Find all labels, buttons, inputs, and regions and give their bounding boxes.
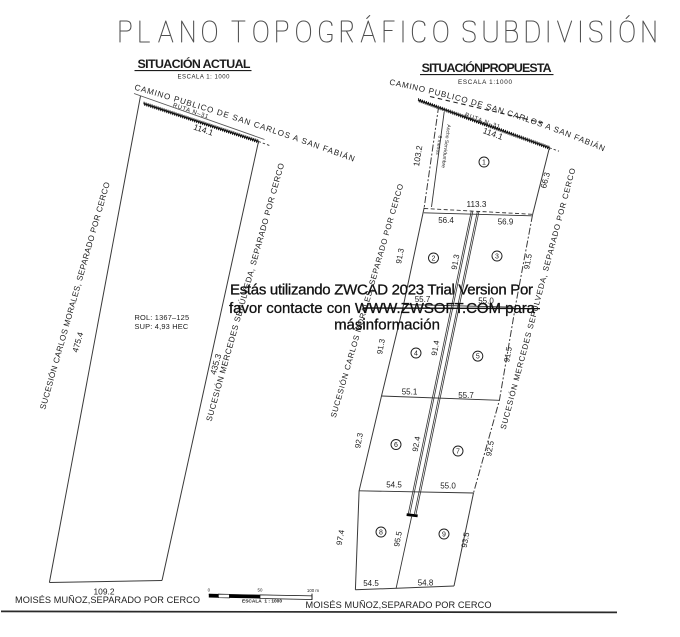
svg-text:ESCALA 1: 1000: ESCALA 1: 1000: [178, 74, 231, 80]
svg-text:Estás utilizando ZWCAD 2023 Tr: Estás utilizando ZWCAD 2023 Trial Versio…: [230, 282, 533, 299]
svg-text:SUP: 4,93 HEC: SUP: 4,93 HEC: [135, 322, 189, 331]
svg-text:1: 1: [482, 160, 486, 167]
svg-text:MOISÉS MUÑOZ,SEPARADO POR CERC: MOISÉS MUÑOZ,SEPARADO POR CERCO: [15, 595, 200, 605]
svg-text:54.8: 54.8: [418, 578, 434, 587]
svg-text:55.7: 55.7: [458, 391, 474, 400]
svg-text:54.5: 54.5: [363, 579, 379, 588]
svg-text:ROL: 1367–125: ROL: 1367–125: [135, 313, 190, 322]
svg-text:55.0: 55.0: [440, 481, 456, 490]
svg-text:55.1: 55.1: [402, 387, 418, 396]
svg-text:56.9: 56.9: [498, 217, 514, 226]
svg-text:9: 9: [442, 532, 446, 539]
svg-text:100 m: 100 m: [307, 588, 320, 593]
svg-text:54.5: 54.5: [386, 480, 402, 489]
svg-text:8: 8: [379, 530, 383, 537]
svg-text:MOISÉS MUÑOZ,SEPARADO POR CERC: MOISÉS MUÑOZ,SEPARADO POR CERCO: [306, 600, 492, 610]
svg-text:ESCALA 1:1000: ESCALA 1:1000: [458, 79, 512, 86]
svg-text:2: 2: [432, 256, 436, 263]
svg-text:113.3: 113.3: [467, 200, 487, 209]
svg-text:50: 50: [258, 588, 263, 593]
svg-text:SITUACIÓNPROPUESTA: SITUACIÓNPROPUESTA: [422, 60, 552, 75]
svg-text:SITUACIÓN ACTUAL: SITUACIÓN ACTUAL: [138, 56, 251, 71]
svg-text:56.4: 56.4: [438, 216, 454, 225]
svg-text:4: 4: [414, 351, 418, 358]
svg-text:3: 3: [495, 254, 499, 261]
svg-text:5: 5: [476, 354, 480, 361]
svg-text:7: 7: [456, 449, 460, 456]
svg-text:6: 6: [394, 442, 398, 449]
svg-text:ESCALA 1 : 1000: ESCALA 1 : 1000: [242, 598, 282, 604]
svg-text:másinformación: másinformación: [334, 317, 440, 334]
